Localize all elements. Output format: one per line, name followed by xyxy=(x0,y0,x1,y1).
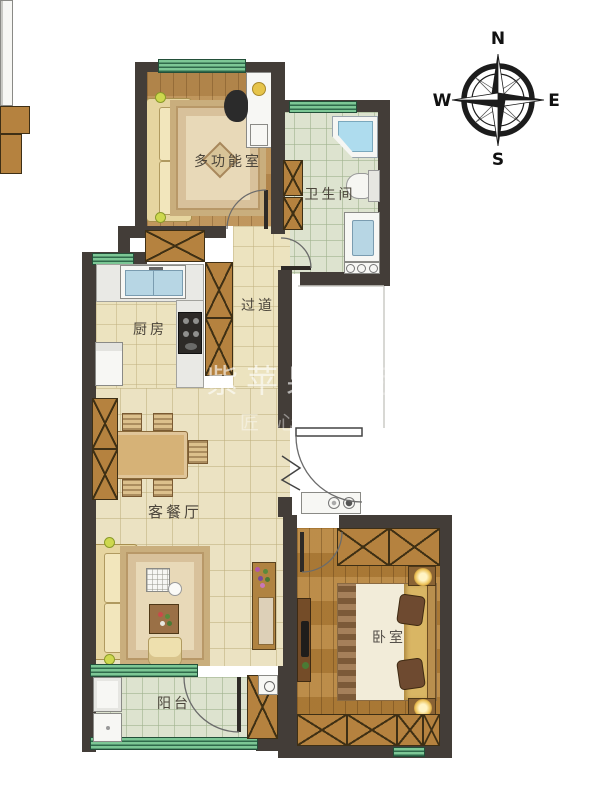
room-label-balcony: 阳台 xyxy=(154,693,194,713)
kitchen-sink xyxy=(120,265,186,299)
wardrobe xyxy=(337,528,389,566)
tv-screen xyxy=(258,597,274,645)
faucet xyxy=(149,267,163,270)
dining-chair xyxy=(122,413,142,431)
vanity-drawers xyxy=(344,262,380,274)
decor-item xyxy=(328,497,340,509)
living-cabinet xyxy=(92,449,118,500)
bedside-lamp xyxy=(414,568,432,586)
wall xyxy=(300,272,390,286)
papers xyxy=(250,124,268,146)
bedroom-cabinet xyxy=(347,714,397,746)
drawer-knob xyxy=(346,264,355,273)
dining-table xyxy=(112,431,188,479)
sink-basins xyxy=(125,270,183,296)
drawer-knob xyxy=(357,264,366,273)
dining-chair xyxy=(122,479,142,497)
dining-chair xyxy=(153,413,173,431)
plant-pot xyxy=(155,212,166,223)
room-label-living-dining: 客餐厅 xyxy=(146,501,204,522)
compass-rose: N S W E xyxy=(432,22,564,168)
room-label-hallway: 过道 xyxy=(238,295,278,315)
plant xyxy=(302,662,309,669)
coffee-table xyxy=(146,568,170,592)
washing-machine xyxy=(93,677,122,712)
compass-west-label: W xyxy=(433,91,452,111)
entry-door xyxy=(282,428,362,502)
wall xyxy=(440,515,452,758)
vanity-sink xyxy=(352,220,374,256)
compass-east-label: E xyxy=(548,91,560,111)
floor-plan: 多功能室 卫生间 过道 厨房 客餐厅 卧室 阳台 N S W E 紫苹果国际设计… xyxy=(0,0,616,800)
computer-monitor xyxy=(301,621,309,657)
window xyxy=(90,664,198,677)
bathroom-cabinet xyxy=(283,197,303,230)
entry-console xyxy=(301,492,361,514)
wall xyxy=(135,62,147,228)
fridge xyxy=(95,342,123,386)
bedroom-cabinet xyxy=(397,714,423,746)
wall xyxy=(283,745,452,758)
laundry-sink xyxy=(93,713,122,742)
plant-pot xyxy=(155,92,166,103)
drawer-knob xyxy=(369,264,378,273)
bedroom-cabinet xyxy=(423,714,440,746)
flowers xyxy=(158,612,163,617)
desk xyxy=(297,598,311,682)
wall xyxy=(278,270,292,428)
armchair xyxy=(148,637,182,667)
toilet-tank xyxy=(368,170,380,202)
washer-box xyxy=(258,675,278,695)
dining-chair xyxy=(188,440,208,464)
window xyxy=(289,101,357,113)
bathtub-basin xyxy=(338,121,373,152)
bathroom-vanity xyxy=(344,212,380,262)
watermark-brand: 紫苹果国际设计 xyxy=(206,356,486,402)
wall xyxy=(278,666,297,758)
wall xyxy=(256,737,280,751)
watermark-brand-faint: 国际设计 xyxy=(326,362,486,400)
dining-chair xyxy=(153,479,173,497)
stove-burners xyxy=(183,318,189,324)
room-label-bathroom: 卫生间 xyxy=(302,184,358,204)
pillow xyxy=(396,657,426,690)
stove-oval xyxy=(185,343,197,350)
compass-south-label: S xyxy=(492,150,504,168)
desk-chair xyxy=(224,90,248,122)
compass-cardinal-points xyxy=(452,54,544,146)
side-table xyxy=(168,582,182,596)
washer-drum xyxy=(264,681,275,692)
wardrobe xyxy=(389,528,440,566)
bathroom-cabinet xyxy=(283,160,303,196)
living-cabinet xyxy=(92,398,118,449)
plant-pot xyxy=(104,537,115,548)
drain xyxy=(106,726,110,730)
storage-cabinet xyxy=(145,230,205,262)
plant xyxy=(255,567,260,572)
room-label-bedroom: 卧室 xyxy=(369,627,409,647)
pillow xyxy=(396,593,426,626)
decor-item xyxy=(343,497,355,509)
compass-north-label: N xyxy=(491,29,505,49)
flower-table xyxy=(149,604,179,634)
headboard xyxy=(427,582,436,706)
window xyxy=(158,59,246,73)
room-label-multi-function: 多功能室 xyxy=(190,151,266,171)
hallway-cabinet xyxy=(205,262,233,318)
hallway-cabinet xyxy=(0,106,30,134)
wall xyxy=(278,497,292,517)
bed-throw xyxy=(338,584,356,700)
room-label-kitchen: 厨房 xyxy=(130,319,170,339)
desk-lamp xyxy=(252,82,266,96)
watermark-slogan: 匠心 xyxy=(240,408,314,435)
wall xyxy=(339,515,452,528)
bathroom-cabinet xyxy=(0,134,22,174)
bay-window xyxy=(0,0,13,106)
tv-console xyxy=(252,562,276,650)
window xyxy=(393,747,425,757)
bedroom-cabinet xyxy=(297,714,347,746)
watermark-brand-strong: 紫苹果 xyxy=(206,362,326,400)
nightstand xyxy=(408,566,436,586)
stove xyxy=(178,312,202,354)
